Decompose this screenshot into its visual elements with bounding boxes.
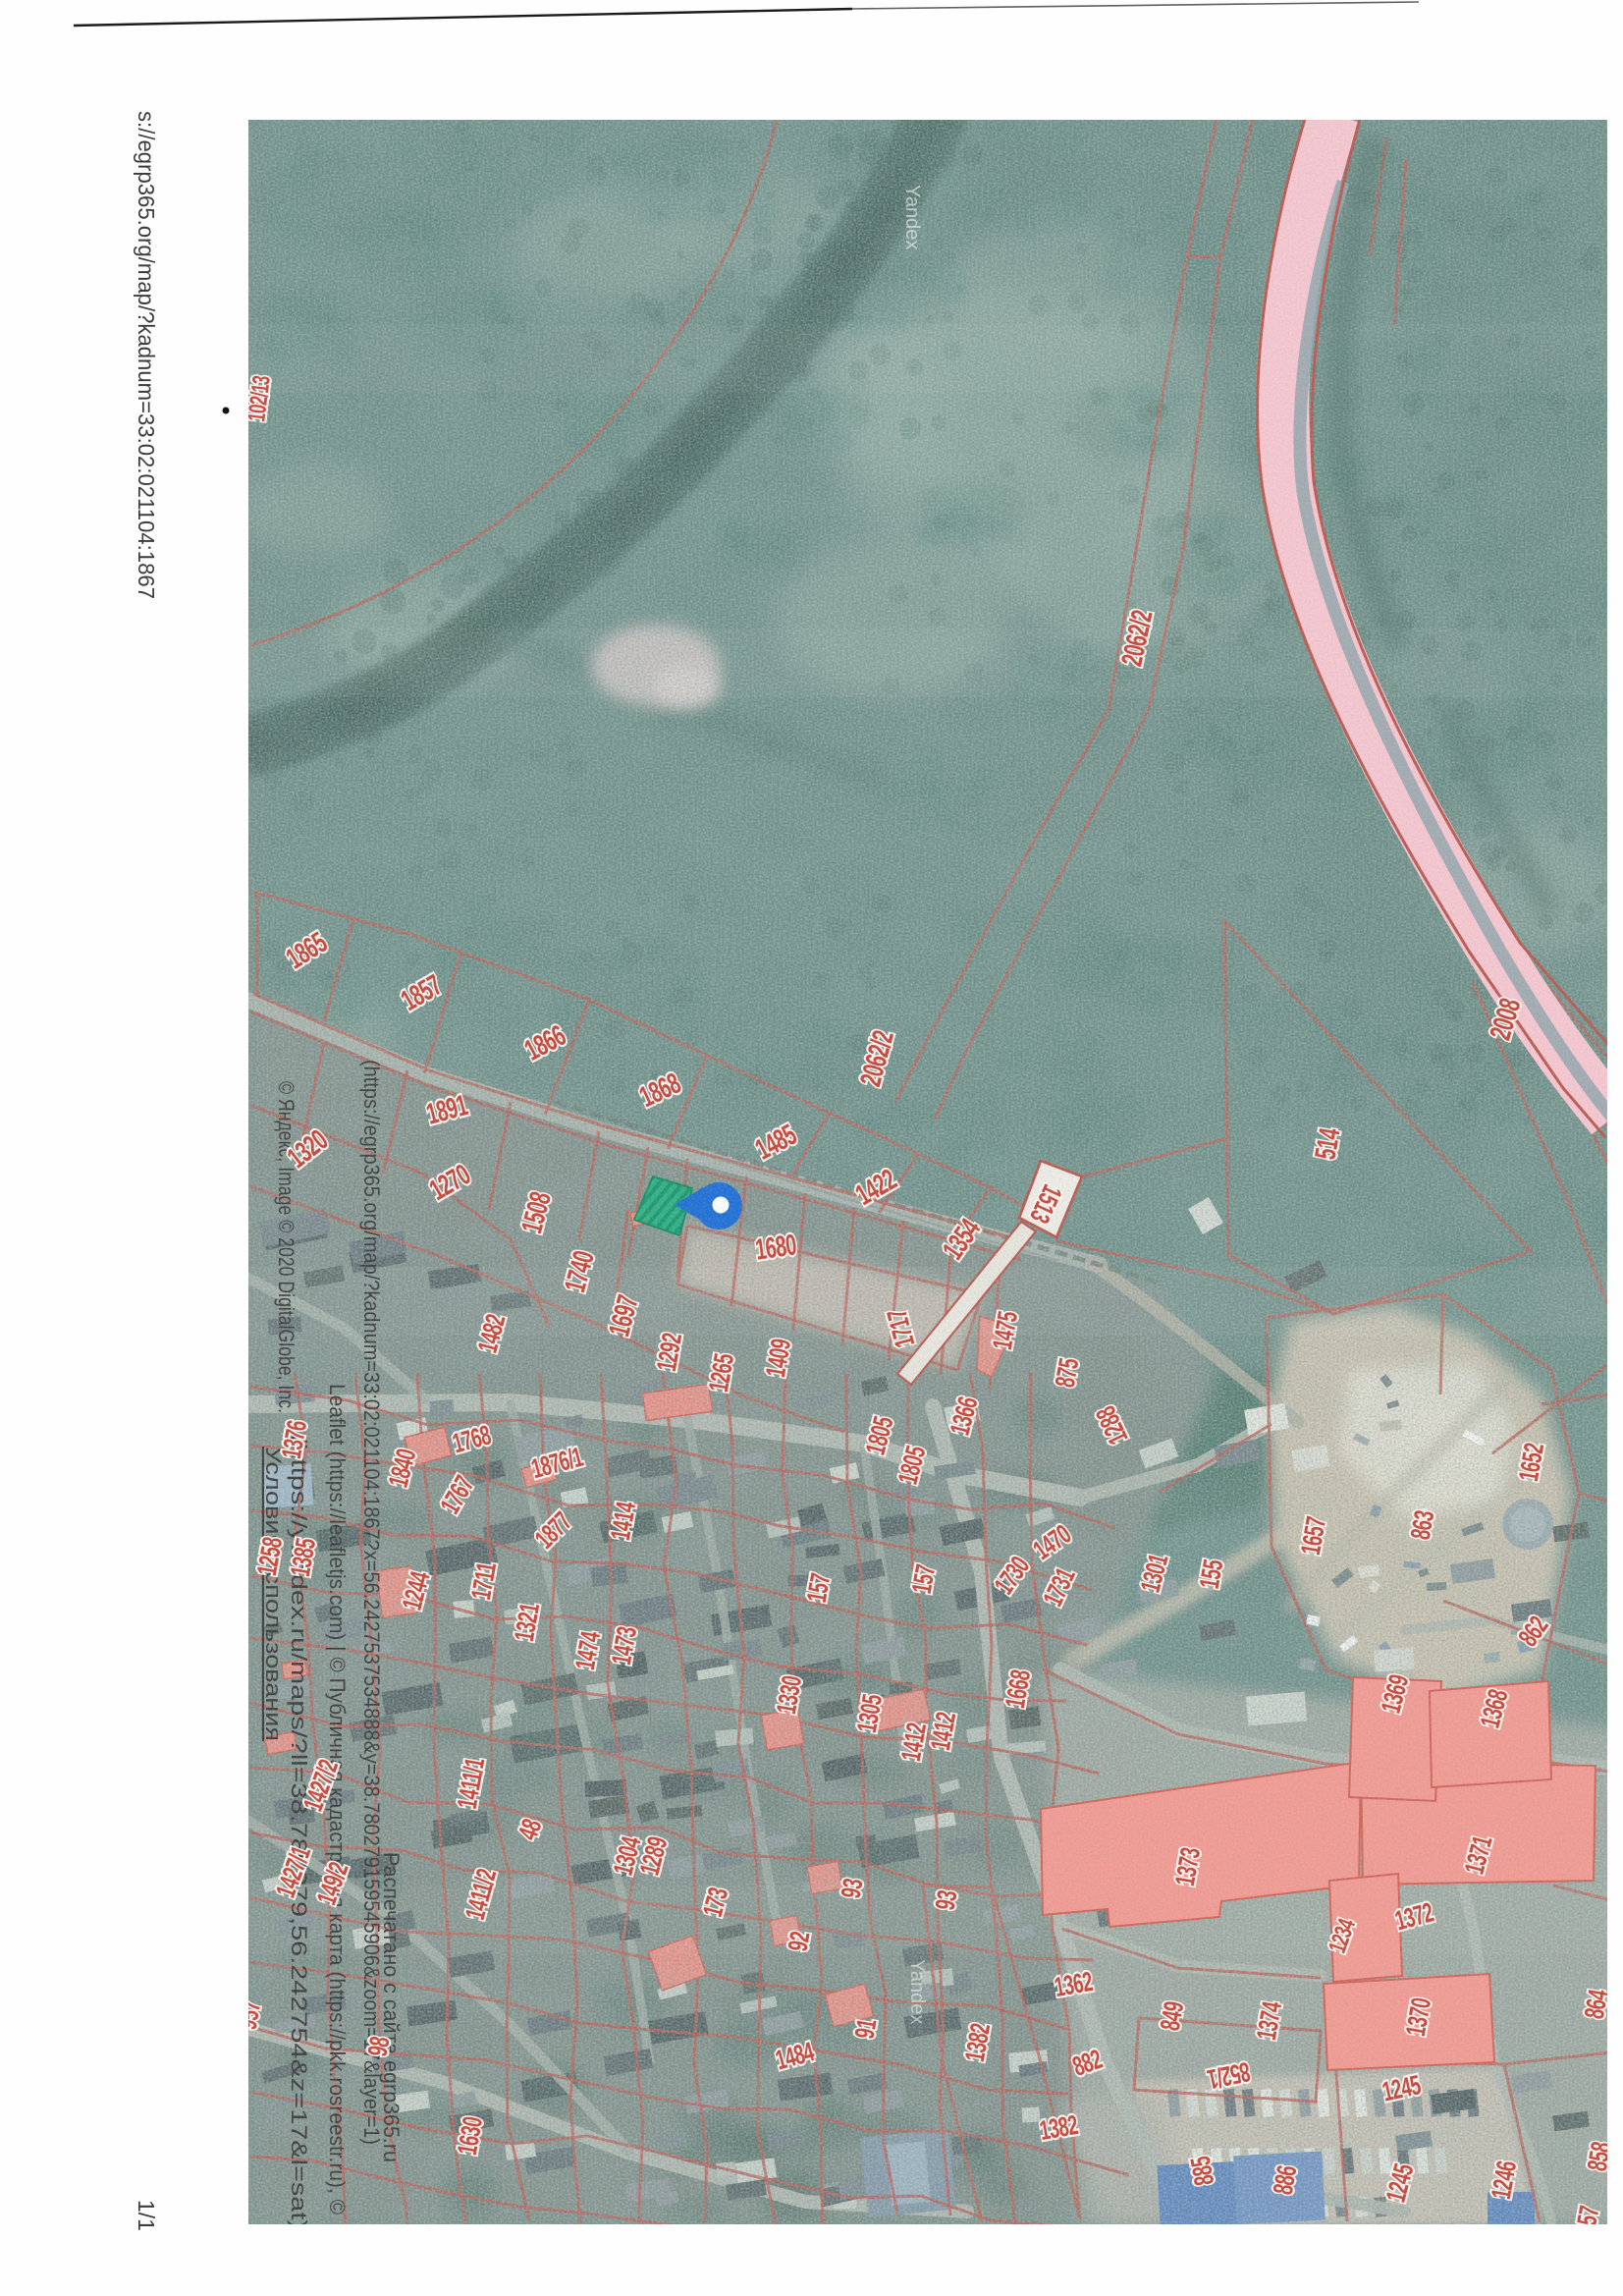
svg-text:1/1: 1/1: [134, 2200, 159, 2231]
svg-text:s://egrp365.org/map/?kadnum=33: s://egrp365.org/map/?kadnum=33:02:021104…: [134, 111, 159, 599]
